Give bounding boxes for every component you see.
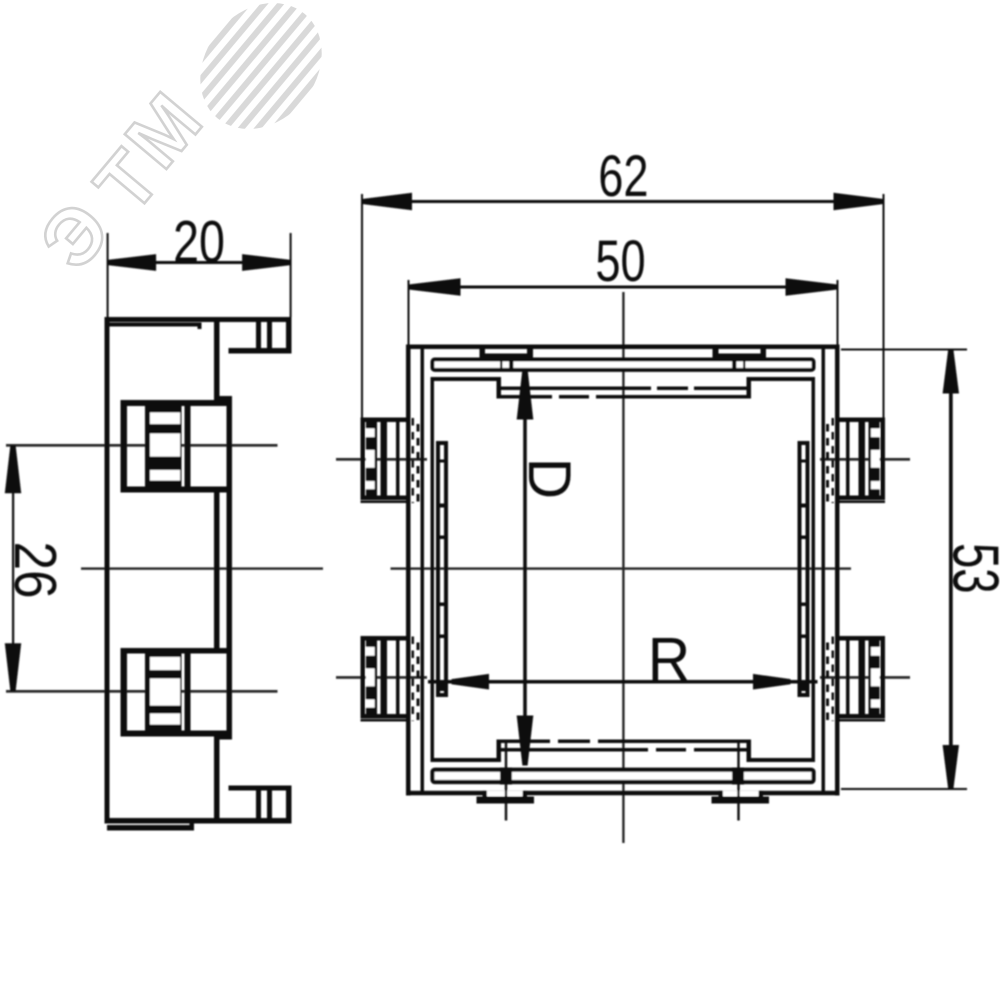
svg-text:53: 53 [940, 543, 1000, 594]
svg-text:D: D [515, 458, 582, 499]
svg-text:20: 20 [173, 210, 225, 275]
svg-text:R: R [648, 625, 691, 695]
svg-text:62: 62 [598, 145, 648, 210]
svg-text:50: 50 [595, 230, 645, 295]
svg-text:26: 26 [2, 541, 68, 598]
